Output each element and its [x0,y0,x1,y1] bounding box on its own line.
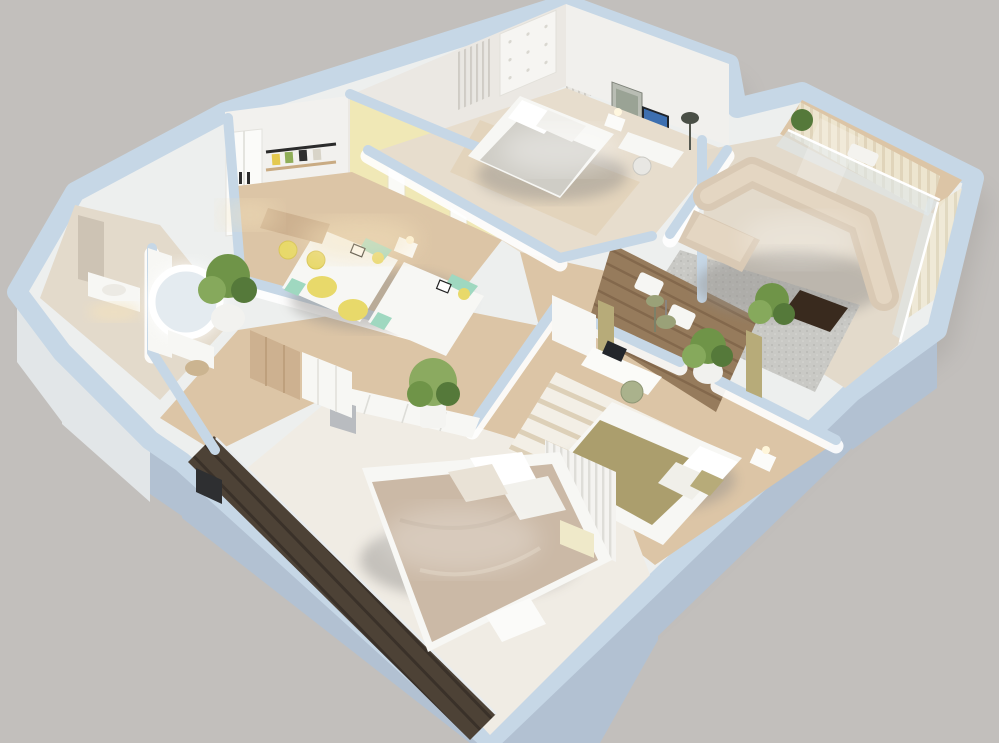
desk-chair-top [633,157,651,175]
table-lamp [614,108,622,116]
nightstand-lamp-right [762,446,770,454]
kids-chair-1 [279,241,297,259]
office-chair [621,381,643,403]
bean-bag-1 [307,276,337,298]
floorplan-render-canvas [0,0,999,743]
floor-lamp-shade [681,112,699,124]
under-cabinet-glow [88,303,140,321]
olive-curtain-right [746,330,762,398]
sink-basin [102,284,126,296]
bean-bag-2 [338,299,368,321]
dressing-stool [185,360,209,376]
terrace-plant-small [791,109,813,131]
terrace-lamp-shade [646,295,664,307]
floorplan-svg [0,0,999,743]
pendant-lamp [656,315,676,329]
